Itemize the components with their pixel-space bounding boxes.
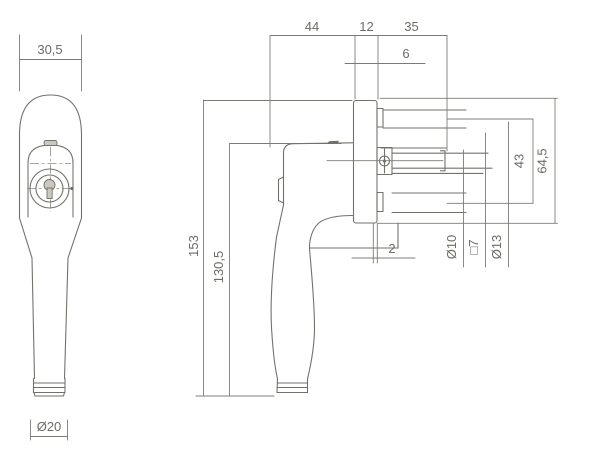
- grip-left-edge: [271, 237, 277, 379]
- dim-label-plate-gap: 2: [388, 241, 395, 256]
- side-view-handle: [271, 141, 352, 393]
- dim-label-rosette-height: 64,5: [535, 148, 550, 173]
- technical-drawing-page: 30,5 Ø20: [0, 0, 601, 471]
- keyhole-slot: [47, 188, 52, 199]
- dim-label-collar-diameter: Ø13: [489, 235, 504, 260]
- dim-label-spindle-length: 35: [404, 19, 418, 34]
- dim-label-screw-spacing: 43: [512, 154, 527, 168]
- front-view-outline: [20, 95, 82, 379]
- rosette-assembly: [310, 101, 533, 249]
- lower-screw-hole: [392, 193, 533, 213]
- dim-label-grip-length: 130,5: [211, 251, 226, 284]
- dim-label-rosette-thickness: 12: [359, 19, 373, 34]
- side-view: 44 12 35 6 153 130,5: [186, 19, 558, 396]
- dim-label-grip-diameter: Ø20: [37, 419, 62, 434]
- dim-label-cap-offset: 6: [402, 46, 409, 61]
- technical-drawing-canvas: 30,5 Ø20: [0, 0, 601, 471]
- dim-label-spindle-square: □7: [466, 239, 481, 254]
- lower-fixing-tab: [377, 193, 383, 212]
- lever-top-edge: [284, 143, 353, 153]
- upper-fixing-tab: [377, 109, 383, 128]
- dim-top-chain-lines: [270, 36, 447, 152]
- lever-underside: [310, 216, 353, 249]
- lever-neck-taper: [277, 205, 284, 237]
- side-grip-ridges: [277, 379, 308, 393]
- upper-screw-hole: [383, 110, 533, 128]
- neck-top-tab: [44, 141, 57, 146]
- grip-right-edge: [308, 248, 315, 379]
- dim-label-head-width: 30,5: [37, 42, 62, 57]
- top-edge-pin: [327, 141, 339, 144]
- dim-label-screw-hole-diameter: Ø10: [444, 235, 459, 260]
- edge-marker-dot: [71, 187, 74, 190]
- rosette-plate: [354, 101, 378, 224]
- dim-label-total-height: 153: [186, 235, 201, 257]
- cylinder-bump: [279, 177, 284, 203]
- dim-label-arm-length: 44: [305, 19, 319, 34]
- front-view: 30,5 Ø20: [20, 35, 82, 440]
- dim-plate-gap-lines: [352, 223, 415, 263]
- front-grip-ridges: [34, 379, 66, 397]
